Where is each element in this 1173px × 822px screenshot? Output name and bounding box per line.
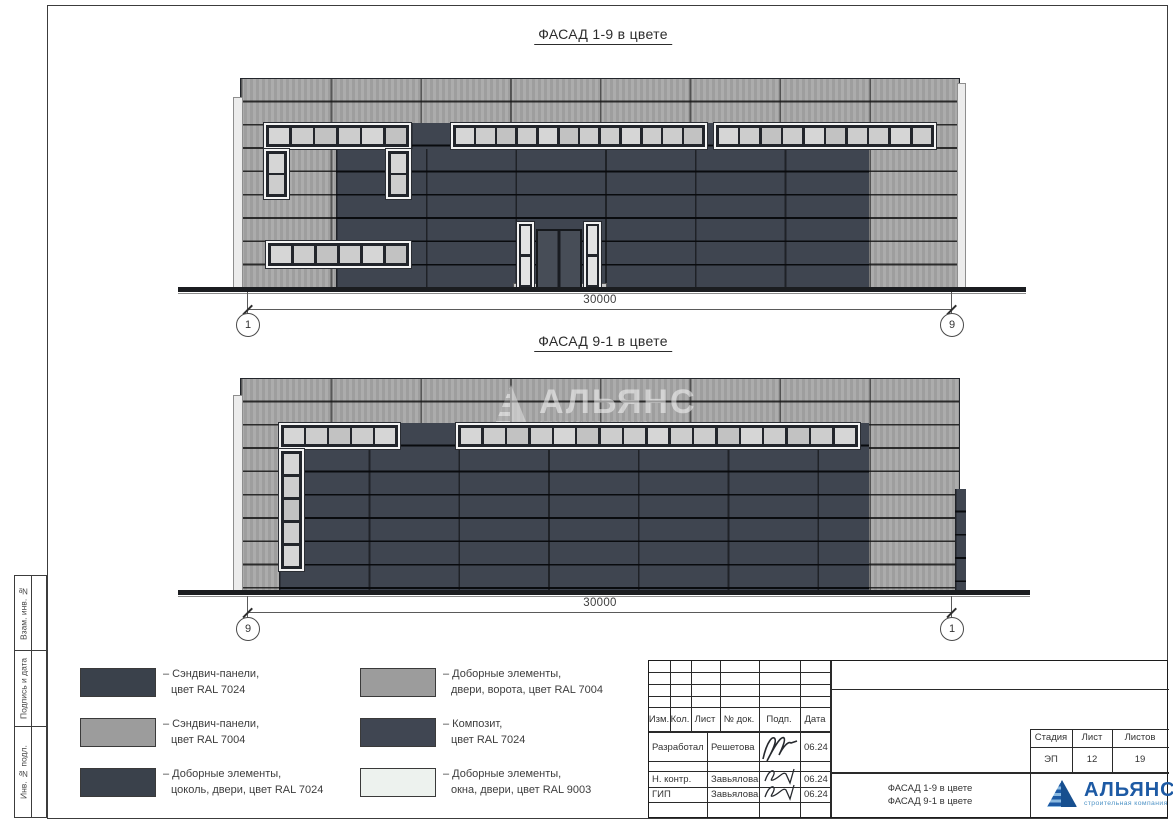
window-pane [317,246,337,264]
window-pane [694,428,715,445]
window-pane [461,428,482,445]
dimension-line [247,309,952,310]
title-block: Изм. Кол. Лист № док. Подп. Дата Разрабо… [648,660,1168,818]
window-pane [497,128,515,145]
logo-brand: АЛЬЯНС [1084,781,1173,800]
tb-doc-title-1: ФАСАД 1-9 в цвете [888,783,972,794]
tb-name: Решетова [711,742,755,753]
window-pane [391,154,407,173]
tb-col-data: Дата [804,714,825,725]
legend-line: цоколь, двери, цвет RAL 7024 [163,783,323,799]
legend-line: цвет RAL 7004 [163,733,259,749]
tb-line [1112,729,1113,774]
tb-sheets-value: 19 [1135,754,1146,765]
legend-item: – Доборные элементы, окна, двери, цвет R… [443,767,591,798]
legend-swatch [80,768,156,797]
window-pane [826,128,845,145]
dark-edge-strip [955,489,966,591]
window-pane [476,128,494,145]
window-pane [560,128,578,145]
legend-item: – Сэндвич-панели, цвет RAL 7004 [163,717,259,748]
margin-divider [31,576,32,650]
window-pane [684,128,702,145]
tb-line [649,802,830,803]
window-pane [741,428,762,445]
margin-box-vzam: Взам. инв. № [14,575,47,651]
legend-line: – Доборные элементы, [443,767,591,783]
window-column [264,149,289,199]
legend-line: – Доборные элементы, [443,667,603,683]
legend-line: окна, двери, цвет RAL 9003 [443,783,591,799]
legend-item: – Композит, цвет RAL 7024 [443,717,525,748]
company-logo: АЛЬЯНС строительная компания [1047,780,1173,807]
window-pane [284,454,300,474]
window-pane [622,128,640,145]
window-band [266,241,411,268]
window-pane [764,428,785,445]
window-pane [329,428,349,445]
window-pane [643,128,661,145]
window-band [264,123,411,149]
tb-name: Завьялова [711,774,758,785]
legend-swatch [80,668,156,697]
tb-line [1030,747,1169,748]
window-pane [913,128,932,145]
tb-doc-title-2: ФАСАД 9-1 в цвете [888,796,972,807]
facade-bottom-title: ФАСАД 9-1 в цвете [534,333,672,352]
margin-box-podpis: Подпись и дата [14,650,47,727]
corner-pilaster [233,97,243,291]
tb-line [649,707,830,708]
window-pane [835,428,856,445]
signature [757,731,801,765]
window-pane [762,128,781,145]
logo-subtitle: строительная компания [1084,800,1173,807]
window-pane [788,428,809,445]
dimension-line [247,612,952,613]
margin-divider [31,727,32,817]
window-pane [539,128,557,145]
window-pane [340,246,360,264]
tb-sheets-label: Листов [1125,732,1156,743]
tb-role: Н. контр. [652,774,691,785]
tb-stage-label: Стадия [1035,732,1067,743]
window-pane [339,128,360,145]
window-band [451,123,707,149]
window-pane [284,523,300,543]
entrance-door [536,229,582,289]
window-pane [271,246,291,264]
window-pane [663,128,681,145]
legend-line: цвет RAL 7024 [443,733,525,749]
window-pane [518,128,536,145]
window-pane [352,428,372,445]
door-sidelight [584,222,601,289]
tb-line [830,689,1169,690]
window-pane [269,128,290,145]
tb-line [649,684,830,685]
window-pane [294,246,314,264]
tb-line [1030,729,1169,730]
tb-sheet-value: 12 [1087,754,1098,765]
margin-divider [31,651,32,726]
window-pane [671,428,692,445]
window-pane [601,128,619,145]
legend-swatch [80,718,156,747]
signature [761,781,801,803]
legend-line: двери, ворота, цвет RAL 7004 [443,683,603,699]
window-pane [375,428,395,445]
margin-label: Взам. инв. № [16,576,31,650]
window-pane [848,128,867,145]
axis-marker-1: 1 [940,617,964,641]
window-pane [362,128,383,145]
window-pane [456,128,474,145]
tb-col-izm: Изм. [649,714,669,725]
tb-col-kol: Кол. [671,714,690,725]
dark-panel-field [336,149,869,289]
margin-label: Инв. № подл. [16,727,31,817]
window-pane [718,428,739,445]
dark-panel-field [279,449,869,591]
tb-role: Разработал [652,742,704,753]
window-pane [783,128,802,145]
tb-name: Завьялова [711,789,758,800]
legend-line: – Композит, [443,717,525,733]
corner-pilaster [233,395,243,593]
window-band [456,423,860,449]
corner-pilaster [957,83,966,291]
tb-line [720,661,721,732]
tb-col-podp: Подп. [766,714,791,725]
window-column [279,449,304,571]
dimension-value: 30000 [583,294,616,306]
window-pane [269,175,285,194]
margin-label: Подпись и дата [16,651,31,726]
window-pane [805,128,824,145]
legend-item: – Сэндвич-панели, цвет RAL 7024 [163,667,259,698]
window-pane [719,128,738,145]
window-pane [648,428,669,445]
axis-marker-9: 9 [940,313,964,337]
drawing-sheet: Взам. инв. № Подпись и дата Инв. № подл.… [0,0,1173,822]
window-pane [269,154,285,173]
legend-line: – Сэндвич-панели, [163,667,259,683]
door-sidelight [517,222,534,289]
legend-swatch [360,668,436,697]
tb-line [649,771,830,772]
dimension-value: 30000 [583,597,616,609]
window-pane [363,246,383,264]
window-band [714,123,936,149]
window-pane [624,428,645,445]
tb-col-doc: № док. [724,714,754,725]
axis-marker-1: 1 [236,313,260,337]
sidelight-pane [521,226,529,254]
window-pane [391,175,407,194]
window-pane [869,128,888,145]
window-pane [811,428,832,445]
tb-date: 06.24 [804,789,828,800]
tb-stage-value: ЭП [1044,754,1058,765]
tb-date: 06.24 [804,774,828,785]
window-column [386,149,411,199]
ground-line [178,590,1030,595]
tb-col-list: Лист [695,714,716,725]
tb-date: 06.24 [804,742,828,753]
sidelight-pane [588,257,596,285]
window-band [279,423,400,449]
window-pane [284,500,300,520]
legend-item: – Доборные элементы, двери, ворота, цвет… [443,667,603,698]
window-pane [740,128,759,145]
window-pane [386,246,406,264]
window-pane [315,128,336,145]
tb-line [691,661,692,732]
legend-line: – Сэндвич-панели, [163,717,259,733]
window-pane [284,546,300,566]
tb-line [649,787,830,788]
window-pane [284,477,300,497]
tb-line [649,696,830,697]
tb-line [649,761,830,762]
tb-line [1072,729,1073,774]
window-pane [484,428,505,445]
facade-1-9-elevation [240,78,960,290]
window-pane [531,428,552,445]
watermark-brand: АЛЬЯНС [539,385,697,419]
window-pane [507,428,528,445]
tb-role: ГИП [652,789,671,800]
margin-box-inv: Инв. № подл. [14,726,47,818]
facade-9-1-elevation: АЛЬЯНС строительная компания [240,378,960,592]
sidelight-pane [521,257,529,285]
tb-line [830,772,1169,774]
window-pane [386,128,407,145]
legend-swatch [360,718,436,747]
tb-line [830,661,832,817]
tb-line [649,672,830,673]
window-pane [554,428,575,445]
logo-triangle-icon [1047,780,1077,807]
ground-line [178,287,1026,292]
window-pane [292,128,313,145]
window-pane [601,428,622,445]
window-pane [577,428,598,445]
window-pane [306,428,326,445]
sidelight-pane [588,226,596,254]
tb-sheet-label: Лист [1082,732,1103,743]
axis-marker-9: 9 [236,617,260,641]
legend-item: – Доборные элементы, цоколь, двери, цвет… [163,767,323,798]
legend-swatch [360,768,436,797]
window-pane [580,128,598,145]
facade-top-title: ФАСАД 1-9 в цвете [534,26,672,45]
window-pane [891,128,910,145]
legend-line: – Доборные элементы, [163,767,323,783]
window-pane [284,428,304,445]
tb-line [649,731,830,733]
tb-line [707,732,708,817]
legend-line: цвет RAL 7024 [163,683,259,699]
